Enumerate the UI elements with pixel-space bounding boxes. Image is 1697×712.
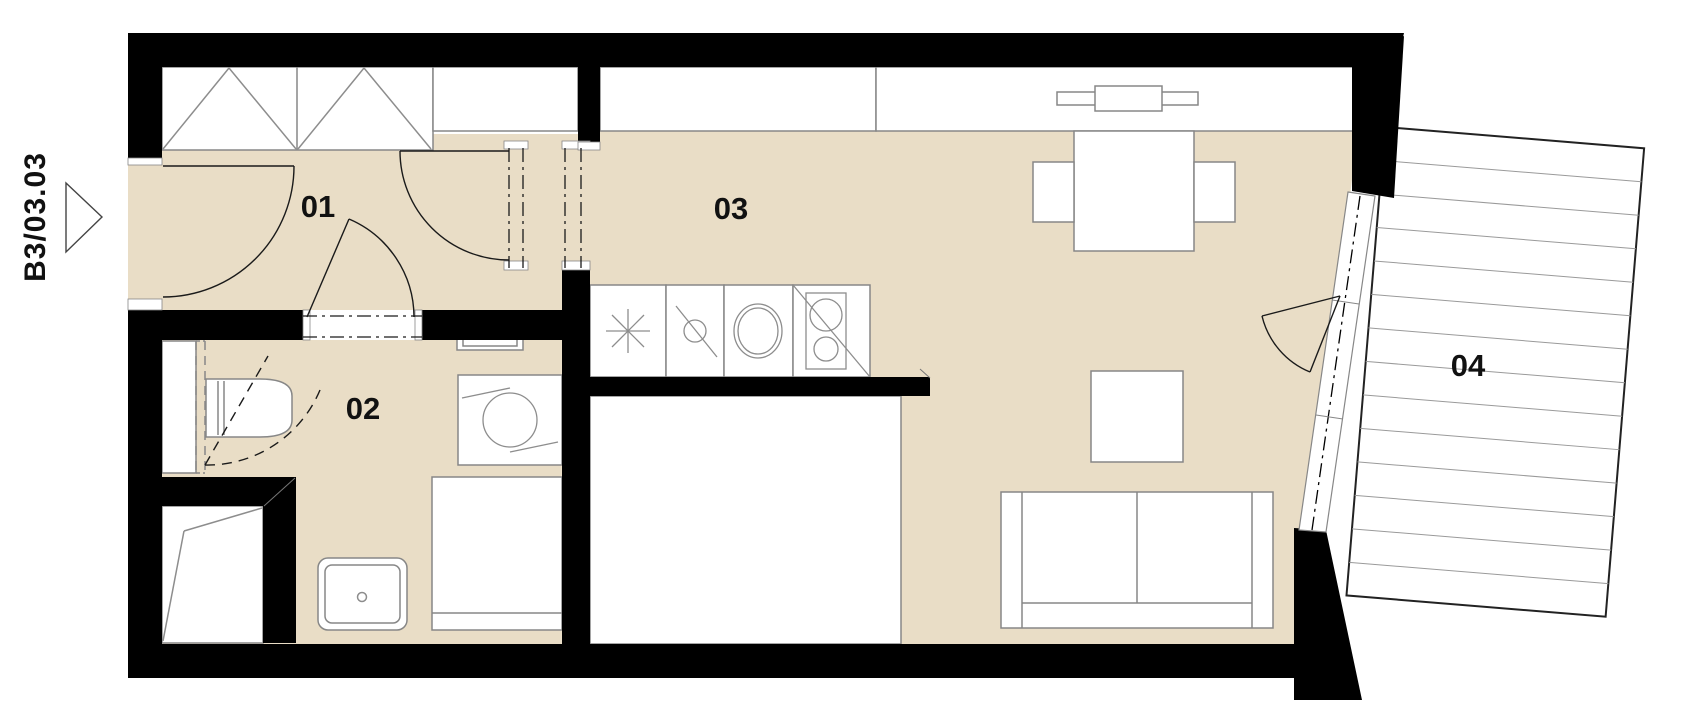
washing-machine — [458, 375, 562, 465]
entrance-arrow-icon — [66, 183, 102, 252]
chair-left — [1033, 162, 1074, 222]
unit-label: B3/03.03 — [19, 152, 52, 282]
wall-bath-niche-top — [128, 477, 296, 506]
wall-hall-bath-right — [422, 310, 562, 340]
wall-left-upper — [128, 33, 162, 158]
jamb — [562, 261, 590, 270]
dishwasher — [666, 285, 724, 377]
room-label-04: 04 — [1451, 348, 1486, 383]
wall-niche-right — [263, 506, 296, 643]
kitchen-counter — [590, 285, 870, 377]
floor-plan-drawing: B3/03.03 01 02 03 04 — [0, 0, 1697, 712]
wall-kitchen-bed — [583, 377, 930, 396]
wall-bath-living — [562, 268, 590, 644]
wall-bottom — [128, 644, 1326, 678]
wall-top — [128, 33, 1404, 67]
coffee-table — [1091, 371, 1183, 462]
sideboard — [600, 67, 1360, 131]
sofa — [1001, 492, 1273, 628]
chair-right — [1194, 162, 1235, 222]
jamb — [128, 158, 162, 165]
jamb — [415, 310, 422, 340]
wardrobe — [162, 67, 433, 150]
jamb — [303, 310, 310, 340]
wall-hall-bath-left — [128, 310, 303, 340]
duct-niche — [162, 506, 263, 643]
hall-cabinet — [433, 67, 578, 131]
wall-stub-hall-living — [578, 50, 600, 142]
fridge-asterisk-icon — [606, 309, 650, 353]
hall-floor — [162, 134, 590, 310]
room-label-03: 03 — [714, 191, 748, 226]
jamb — [128, 299, 162, 310]
jamb — [504, 141, 528, 149]
bed — [590, 396, 901, 644]
room-label-02: 02 — [346, 391, 380, 426]
floor-plan-page: B3/03.03 01 02 03 04 — [0, 0, 1697, 712]
entrance-threshold-floor — [128, 165, 162, 299]
balcony — [1346, 127, 1644, 617]
room-label-01: 01 — [301, 189, 335, 224]
shower — [432, 477, 562, 630]
jamb — [504, 261, 528, 270]
washbasin — [318, 558, 407, 630]
